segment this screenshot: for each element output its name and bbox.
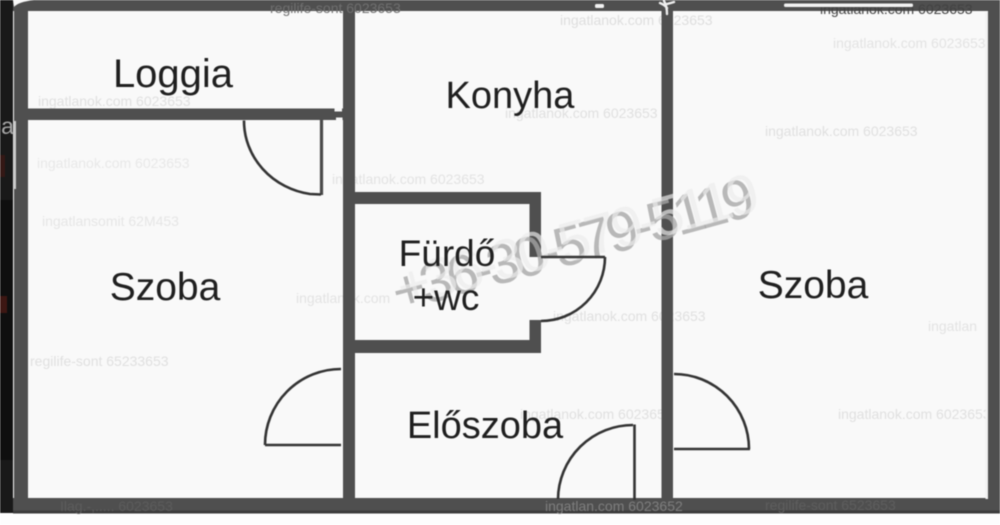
svg-text:ingatlanok.com 6023653: ingatlanok.com 6023653 [37,155,190,171]
svg-text:la: la [0,113,14,139]
svg-text:Fürdő: Fürdő [399,233,496,274]
svg-text:regilife-sont 65233653: regilife-sont 65233653 [30,353,169,369]
svg-text:regilife-sont 6523653: regilife-sont 6523653 [765,497,896,513]
svg-text:ingatlanok.com 6023653: ingatlanok.com 6023653 [765,123,918,139]
svg-text:ingatlan: ingatlan [928,318,977,334]
svg-text:ingatlanok.com 6023653: ingatlanok.com 6023653 [838,406,991,422]
svg-text:Konyha: Konyha [446,75,576,117]
svg-text:ingatlan.com 6023652: ingatlan.com 6023652 [545,498,683,514]
svg-text:ingatlanok.com 6023653: ingatlanok.com 6023653 [820,1,973,17]
svg-text:ingatlanok.com 6023653: ingatlanok.com 6023653 [560,12,713,28]
svg-text:ingatlansomit 62M453: ingatlansomit 62M453 [42,213,179,229]
svg-text:+wc: +wc [413,277,480,318]
svg-text:Loggia: Loggia [113,52,234,96]
svg-text:Szoba: Szoba [758,264,869,307]
svg-text:regilife-sont 6023653: regilife-sont 6023653 [270,0,401,16]
svg-text:ingatlanok.com 6023653: ingatlanok.com 6023653 [833,35,986,51]
svg-text:Ilag.-,..... 6023653: Ilag.-,..... 6023653 [60,498,173,514]
svg-text:Szoba: Szoba [110,266,221,309]
svg-text:Előszoba: Előszoba [407,405,564,447]
